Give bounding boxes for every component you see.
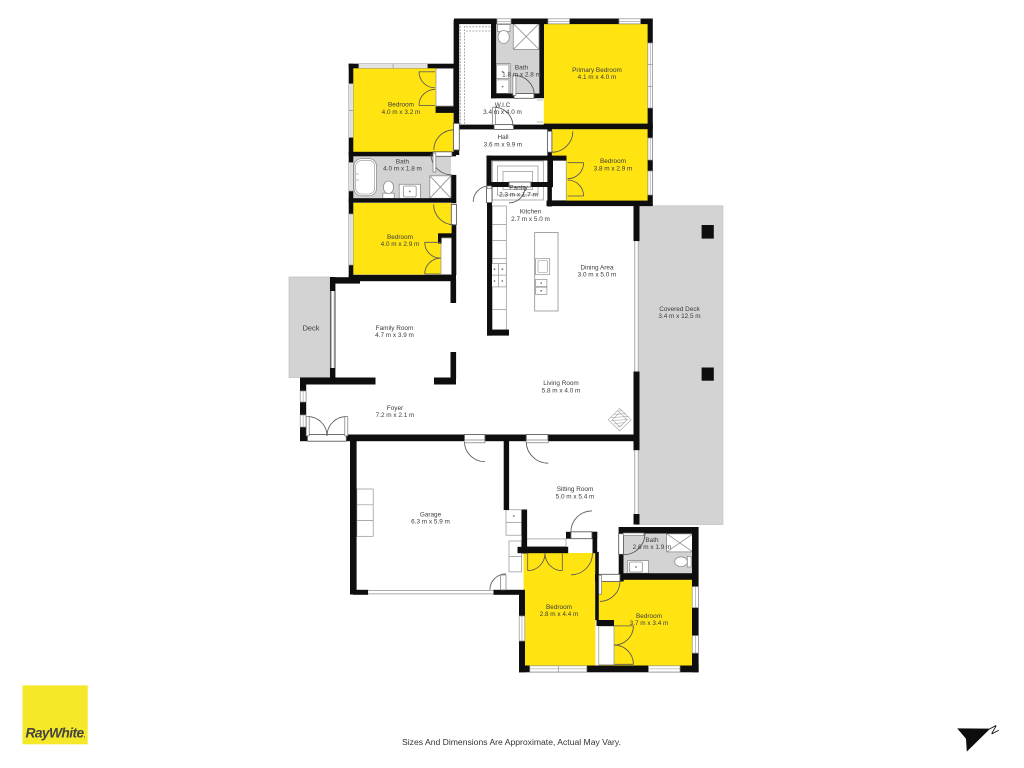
svg-text:Primary Bedroom: Primary Bedroom xyxy=(572,67,622,74)
svg-text:Foyer: Foyer xyxy=(387,405,404,412)
svg-text:Hall: Hall xyxy=(497,134,508,141)
svg-text:1.8 m x 2.8 m: 1.8 m x 2.8 m xyxy=(502,72,541,79)
svg-text:Bedroom: Bedroom xyxy=(546,604,572,611)
svg-text:7.2 m x 2.1 m: 7.2 m x 2.1 m xyxy=(376,412,415,419)
svg-text:6.3 m x 5.9 m: 6.3 m x 5.9 m xyxy=(411,519,450,526)
svg-text:4.0 m x 3.2 m: 4.0 m x 3.2 m xyxy=(382,109,421,116)
svg-text:3.0 m x 5.0 m: 3.0 m x 5.0 m xyxy=(578,272,617,279)
svg-text:Sizes And Dimensions Are Appro: Sizes And Dimensions Are Approximate, Ac… xyxy=(402,737,621,747)
svg-text:3.4 m x 12.5 m: 3.4 m x 12.5 m xyxy=(658,313,700,320)
svg-text:4.1 m x 4.0 m: 4.1 m x 4.0 m xyxy=(578,74,617,81)
svg-text:Bedroom: Bedroom xyxy=(387,234,413,241)
svg-text:Sitting Room: Sitting Room xyxy=(557,486,594,493)
svg-text:Family Room: Family Room xyxy=(376,325,414,332)
svg-text:3.4 m x 4.0 m: 3.4 m x 4.0 m xyxy=(483,109,522,116)
svg-text:Bedroom: Bedroom xyxy=(636,613,662,620)
svg-text:2.8 m x 4.4 m: 2.8 m x 4.4 m xyxy=(540,611,579,618)
svg-text:4.0 m x 1.8 m: 4.0 m x 1.8 m xyxy=(383,166,422,173)
svg-text:2.7 m x 5.0 m: 2.7 m x 5.0 m xyxy=(511,216,550,223)
svg-text:Covered Deck: Covered Deck xyxy=(659,306,700,313)
svg-text:Garage: Garage xyxy=(420,511,442,518)
svg-text:Dining Area: Dining Area xyxy=(580,264,613,271)
svg-text:Bath: Bath xyxy=(645,537,659,544)
svg-text:Bath: Bath xyxy=(515,64,529,71)
svg-text:5.8 m x 4.0 m: 5.8 m x 4.0 m xyxy=(542,388,581,395)
svg-text:Pantry: Pantry xyxy=(509,184,528,191)
svg-text:Bedroom: Bedroom xyxy=(388,102,414,109)
svg-text:Kitchen: Kitchen xyxy=(520,209,542,216)
svg-text:5.0 m x 5.4 m: 5.0 m x 5.4 m xyxy=(556,493,595,500)
svg-text:3.8 m x 2.9 m: 3.8 m x 2.9 m xyxy=(594,165,633,172)
svg-text:4.7 m x 3.9 m: 4.7 m x 3.9 m xyxy=(375,332,414,339)
svg-text:3.7 m x 3.4 m: 3.7 m x 3.4 m xyxy=(630,620,669,627)
svg-text:W.I.C: W.I.C xyxy=(495,102,511,109)
svg-text:Deck: Deck xyxy=(303,324,320,333)
svg-text:3.6 m x 9.9 m: 3.6 m x 9.9 m xyxy=(484,141,523,148)
svg-text:RayWhite.: RayWhite. xyxy=(26,726,86,741)
svg-text:4.0 m x 2.9 m: 4.0 m x 2.9 m xyxy=(381,241,420,248)
svg-text:Bedroom: Bedroom xyxy=(600,158,626,165)
svg-text:Bath: Bath xyxy=(396,158,410,165)
svg-text:2.3 m x 1.7 m: 2.3 m x 1.7 m xyxy=(499,192,538,199)
svg-text:Living Room: Living Room xyxy=(543,380,579,387)
svg-text:2.6 m x 1.9 m: 2.6 m x 1.9 m xyxy=(633,544,672,551)
